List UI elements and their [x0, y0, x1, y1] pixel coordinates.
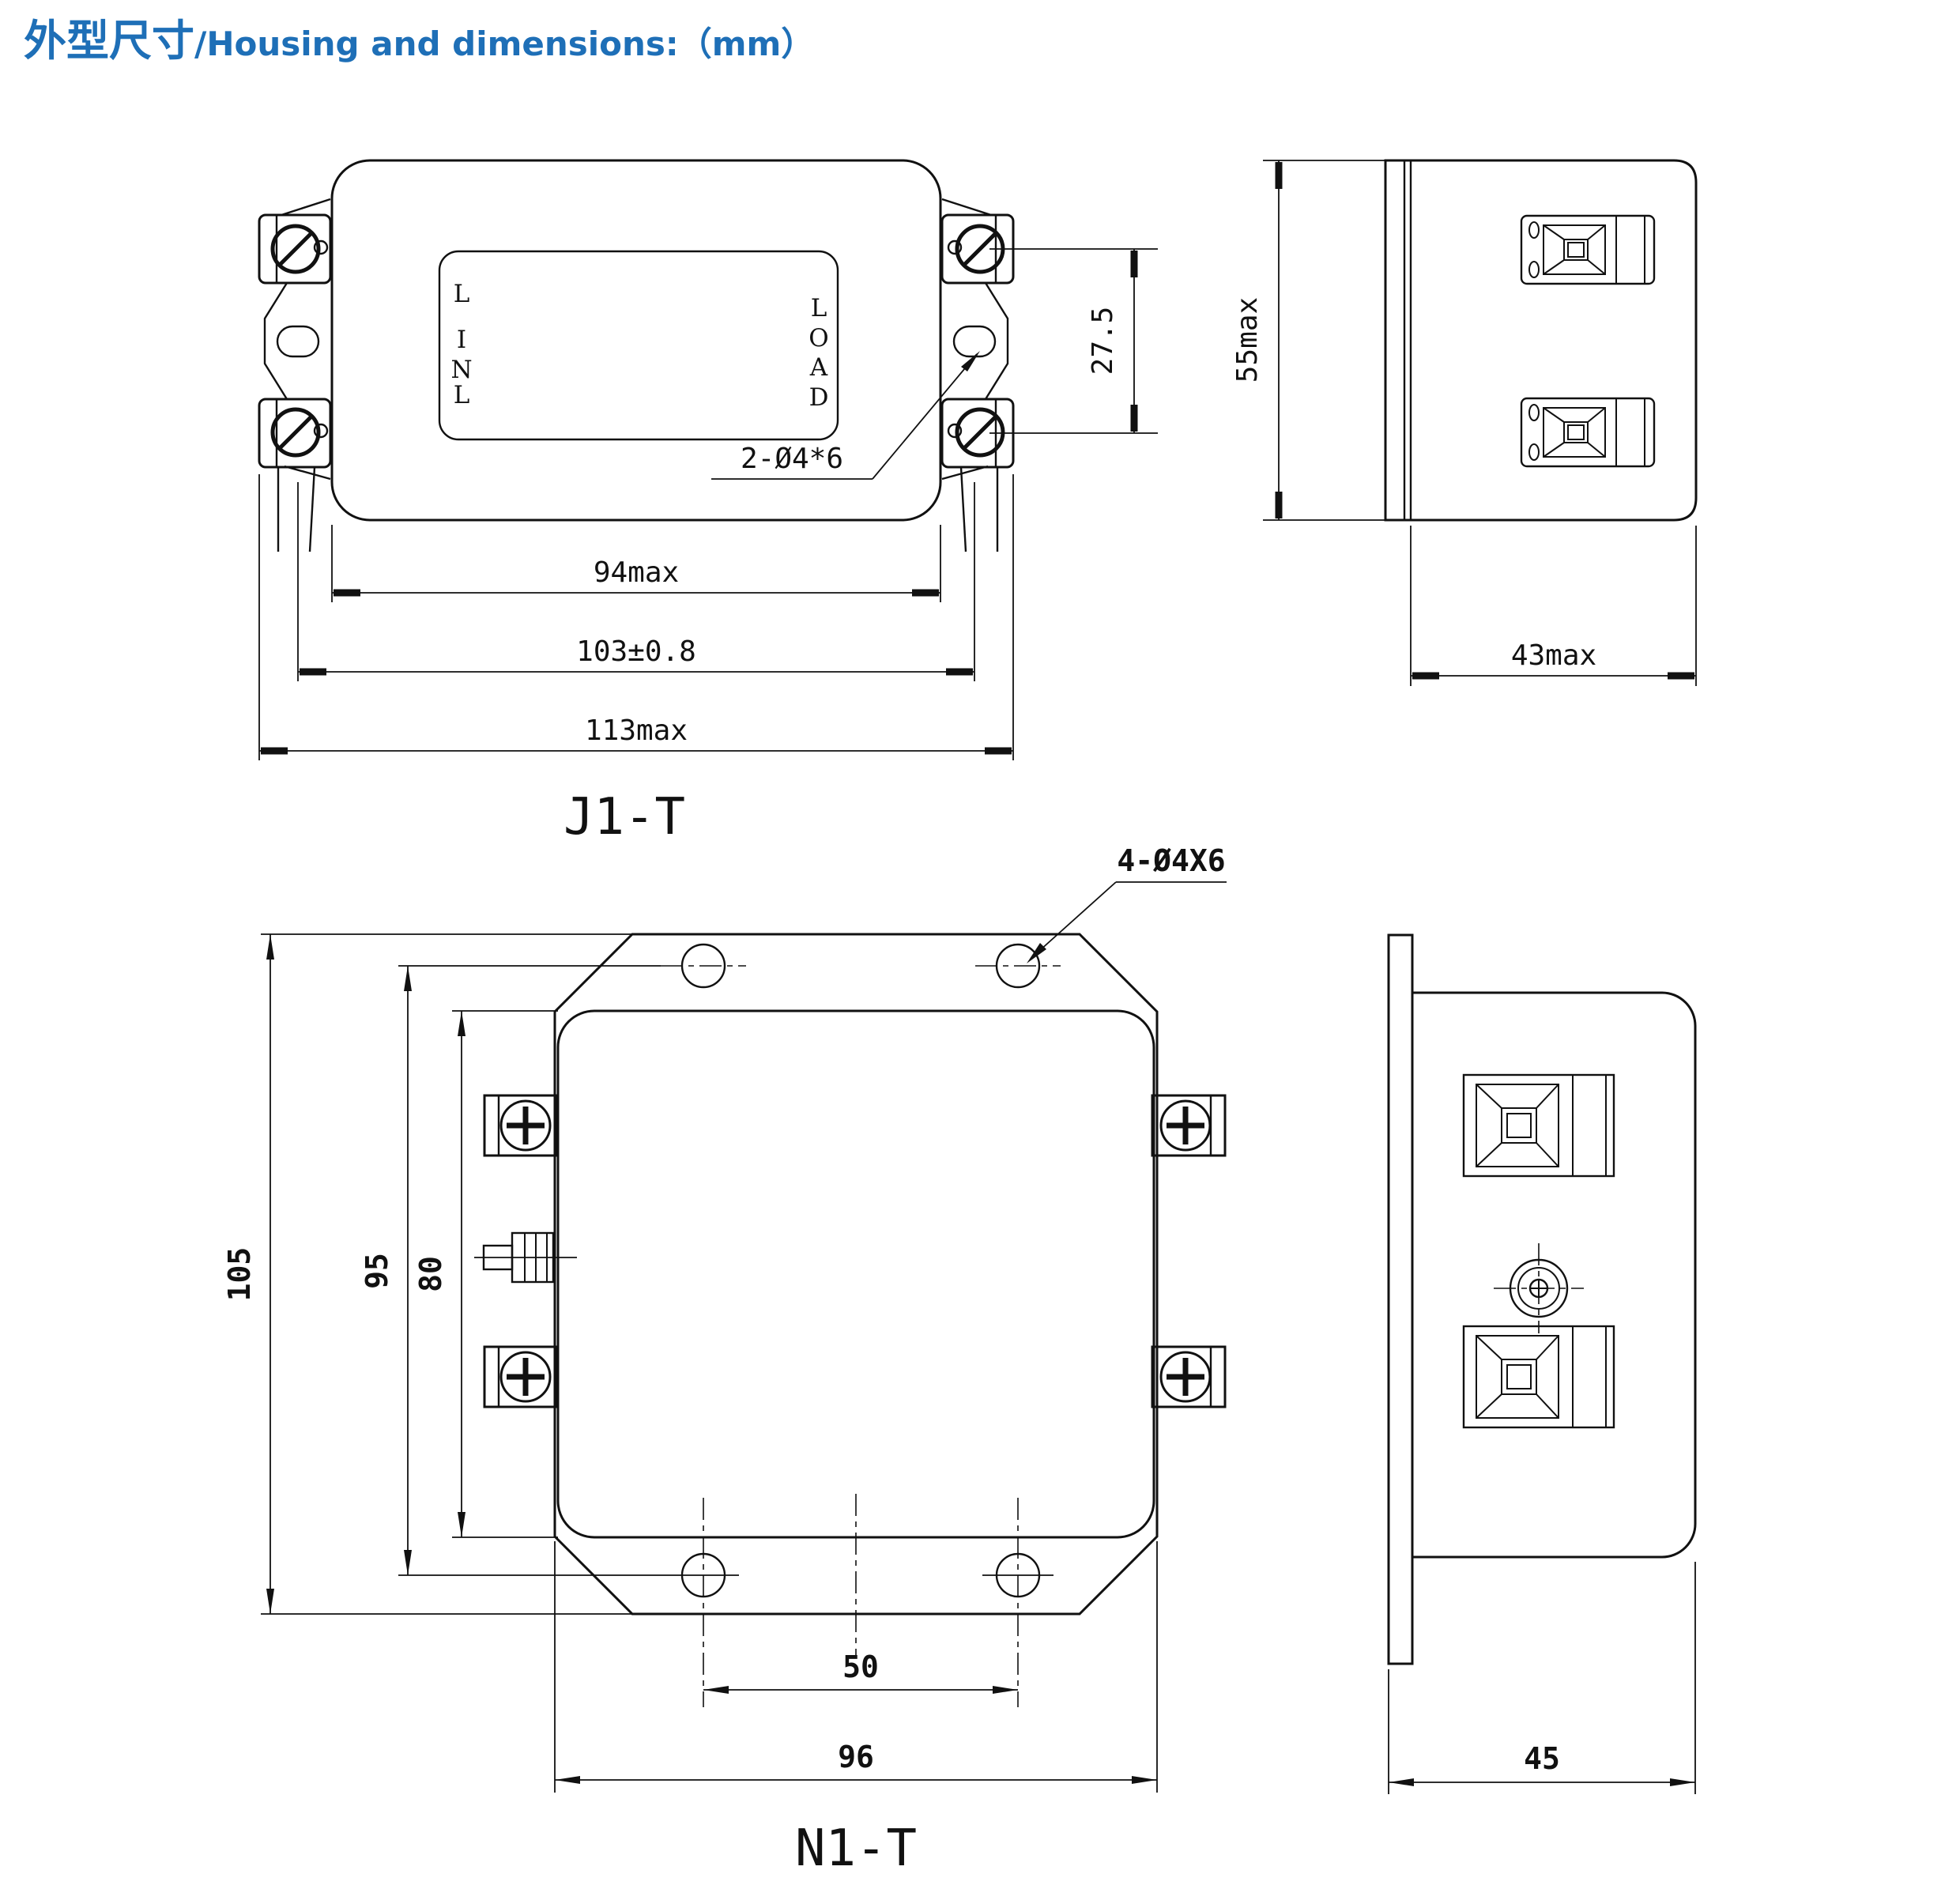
- j1t-feet: [278, 467, 997, 552]
- pilot-hole: [948, 424, 961, 437]
- view-n1t-side: 45: [1389, 935, 1695, 1794]
- j1t-label-plate: [439, 251, 838, 439]
- j1t-mount-wing-right: [954, 283, 1008, 399]
- marking-D: D: [809, 383, 829, 412]
- bevel-edge: [1476, 1336, 1502, 1359]
- dim-arrow-icon: [1670, 1778, 1695, 1786]
- j1t-terminal-block-bottom-left: [259, 399, 330, 467]
- screw-slot: [964, 417, 996, 448]
- j1t-bend-top-left: [281, 199, 330, 215]
- marking-A: A: [809, 353, 828, 382]
- bevel-edge: [1588, 260, 1605, 274]
- page-title-en: Housing and dimensions:（mm）: [206, 25, 814, 63]
- dim-arrow-icon: [993, 1686, 1018, 1694]
- terminal-ear-hole: [1529, 222, 1539, 238]
- dim-arrow-icon: [1132, 1776, 1157, 1784]
- marking-L3: L: [811, 294, 827, 322]
- n1t-dim-hole-span-vertical: 95: [360, 966, 668, 1575]
- bevel-edge: [1543, 225, 1564, 239]
- n1t-caption: N1-T: [795, 1819, 917, 1878]
- dim-text: 80: [413, 1256, 448, 1292]
- n1t-side-flange: [1389, 935, 1412, 1664]
- dim-text: 50: [842, 1650, 879, 1684]
- dim-text: 105: [222, 1247, 257, 1302]
- marking-L1: L: [454, 280, 470, 308]
- dim-text: 55max: [1231, 297, 1264, 383]
- drawing-page: 外型尺寸/Housing and dimensions:（mm） L I N L…: [0, 0, 1960, 1889]
- bevel-edge: [1476, 1394, 1502, 1418]
- dim-arrow-icon: [266, 934, 274, 960]
- view-j1t-front: L I N L L O A D: [259, 160, 1158, 846]
- marking-L2: L: [454, 381, 470, 409]
- bevel-edge: [1588, 443, 1605, 457]
- dim-arrow-icon: [458, 1011, 465, 1036]
- pilot-hole: [315, 424, 327, 437]
- n1t-terminal-block-top-left: [484, 1095, 556, 1156]
- terminal-socket-inner: [1507, 1114, 1531, 1137]
- dim-arrow-icon: [1389, 1778, 1414, 1786]
- foot-line: [961, 467, 966, 552]
- leader-text: 2-Ø4*6: [741, 443, 843, 475]
- dim-text: 113max: [585, 715, 688, 747]
- bevel-edge: [1543, 408, 1564, 422]
- j1t-dim-terminal-span: 27.5: [989, 249, 1158, 433]
- n1t-side-ground-screw: [1494, 1243, 1584, 1333]
- bevel-edge: [1536, 1084, 1559, 1108]
- bevel-edge: [1588, 225, 1605, 239]
- dim-arrow-icon: [703, 1686, 729, 1694]
- bevel-edge: [1588, 408, 1605, 422]
- j1t-terminal-marking-line: L I N L L O A D: [450, 280, 828, 412]
- j1t-body-outline: [332, 160, 940, 520]
- n1t-leader-mount-holes: 4-Ø4X6: [1027, 843, 1227, 963]
- screw-slot: [280, 417, 311, 448]
- dim-arrow-icon: [555, 1776, 580, 1784]
- mount-hole: [954, 326, 995, 356]
- dim-text: 103±0.8: [576, 635, 696, 668]
- marking-I: I: [457, 326, 466, 354]
- n1t-terminal-block-bottom-right: [1152, 1347, 1225, 1407]
- j1t-terminal-block-top-left: [259, 215, 330, 283]
- bevel-edge: [1536, 1143, 1559, 1167]
- n1t-ground-stud: [474, 1233, 577, 1282]
- j1t-caption: J1-T: [563, 788, 685, 846]
- n1t-dim-hole-span-horizontal: 50: [703, 1650, 1018, 1694]
- bevel-edge: [1476, 1143, 1502, 1167]
- pilot-hole: [948, 241, 961, 254]
- n1t-dim-depth: 45: [1389, 1562, 1695, 1794]
- bevel-edge: [1536, 1336, 1559, 1359]
- leader-arrow-icon: [961, 351, 980, 371]
- drawing-canvas: 外型尺寸/Housing and dimensions:（mm） L I N L…: [0, 0, 1960, 1889]
- terminal-socket-inner: [1568, 425, 1584, 439]
- dim-text: 45: [1524, 1741, 1560, 1776]
- leader-text: 4-Ø4X6: [1117, 843, 1225, 878]
- mount-hole: [277, 326, 318, 356]
- pilot-hole: [315, 241, 327, 254]
- dim-text: 96: [838, 1740, 874, 1774]
- terminal-ear-hole: [1529, 444, 1539, 460]
- j1t-dim-overall-width: 113max: [259, 474, 1013, 760]
- n1t-mount-hole-top-left: [661, 944, 746, 987]
- n1t-terminal-block-top-right: [1152, 1095, 1225, 1156]
- marking-N: N: [450, 356, 472, 384]
- j1t-bend-top-right: [942, 199, 991, 215]
- n1t-body-outline: [558, 1011, 1154, 1537]
- terminal-socket-inner: [1568, 243, 1584, 257]
- page-title-zh: 外型尺寸: [24, 16, 194, 66]
- terminal-ear-hole: [1529, 405, 1539, 420]
- terminal-ear-hole: [1529, 262, 1539, 277]
- foot-line: [310, 467, 315, 552]
- n1t-side-terminal-top: [1464, 1075, 1614, 1176]
- j1t-dim-depth: 43max: [1411, 526, 1696, 686]
- bevel-edge: [1543, 260, 1564, 274]
- terminal-outline: [1464, 1326, 1614, 1427]
- j1t-dim-body-width: 94max: [332, 525, 940, 602]
- bevel-edge: [1536, 1394, 1559, 1418]
- dim-arrow-icon: [404, 966, 412, 991]
- page-title: 外型尺寸/Housing and dimensions:（mm）: [24, 16, 814, 66]
- bevel-edge: [1543, 443, 1564, 457]
- dim-arrow-icon: [458, 1512, 465, 1537]
- terminal-socket-inner: [1507, 1365, 1531, 1389]
- j1t-side-terminal-bottom: [1521, 398, 1654, 466]
- wing-outline: [986, 283, 1008, 399]
- dim-arrow-icon: [404, 1550, 412, 1575]
- terminal-outline: [1464, 1075, 1614, 1176]
- n1t-terminal-block-bottom-left: [484, 1347, 556, 1407]
- dim-text: 27.5: [1087, 307, 1119, 375]
- dim-arrow-icon: [266, 1589, 274, 1614]
- marking-O: O: [808, 324, 828, 353]
- dim-text: 43max: [1511, 639, 1596, 672]
- bevel-edge: [1476, 1084, 1502, 1108]
- dim-text: 95: [360, 1253, 394, 1289]
- n1t-mount-hole-bottom-right: [982, 1498, 1053, 1707]
- view-n1t-front: 4-Ø4X6 105 95: [222, 843, 1227, 1878]
- n1t-side-terminal-bottom: [1464, 1326, 1614, 1427]
- n1t-mount-hole-bottom-left: [668, 1498, 739, 1707]
- n1t-mount-hole-top-right: [975, 944, 1061, 987]
- page-title-sep: /: [194, 25, 207, 63]
- leader-line: [1031, 882, 1116, 958]
- leader-arrow-icon: [1027, 943, 1046, 963]
- screw-slot: [280, 233, 311, 265]
- wing-outline: [265, 283, 287, 399]
- view-j1t-side: 55max 43max: [1231, 160, 1696, 686]
- j1t-dim-height: 55max: [1231, 160, 1385, 520]
- j1t-side-terminal-top: [1521, 216, 1654, 284]
- j1t-mount-wing-left: [265, 283, 318, 399]
- dim-text: 94max: [594, 556, 679, 589]
